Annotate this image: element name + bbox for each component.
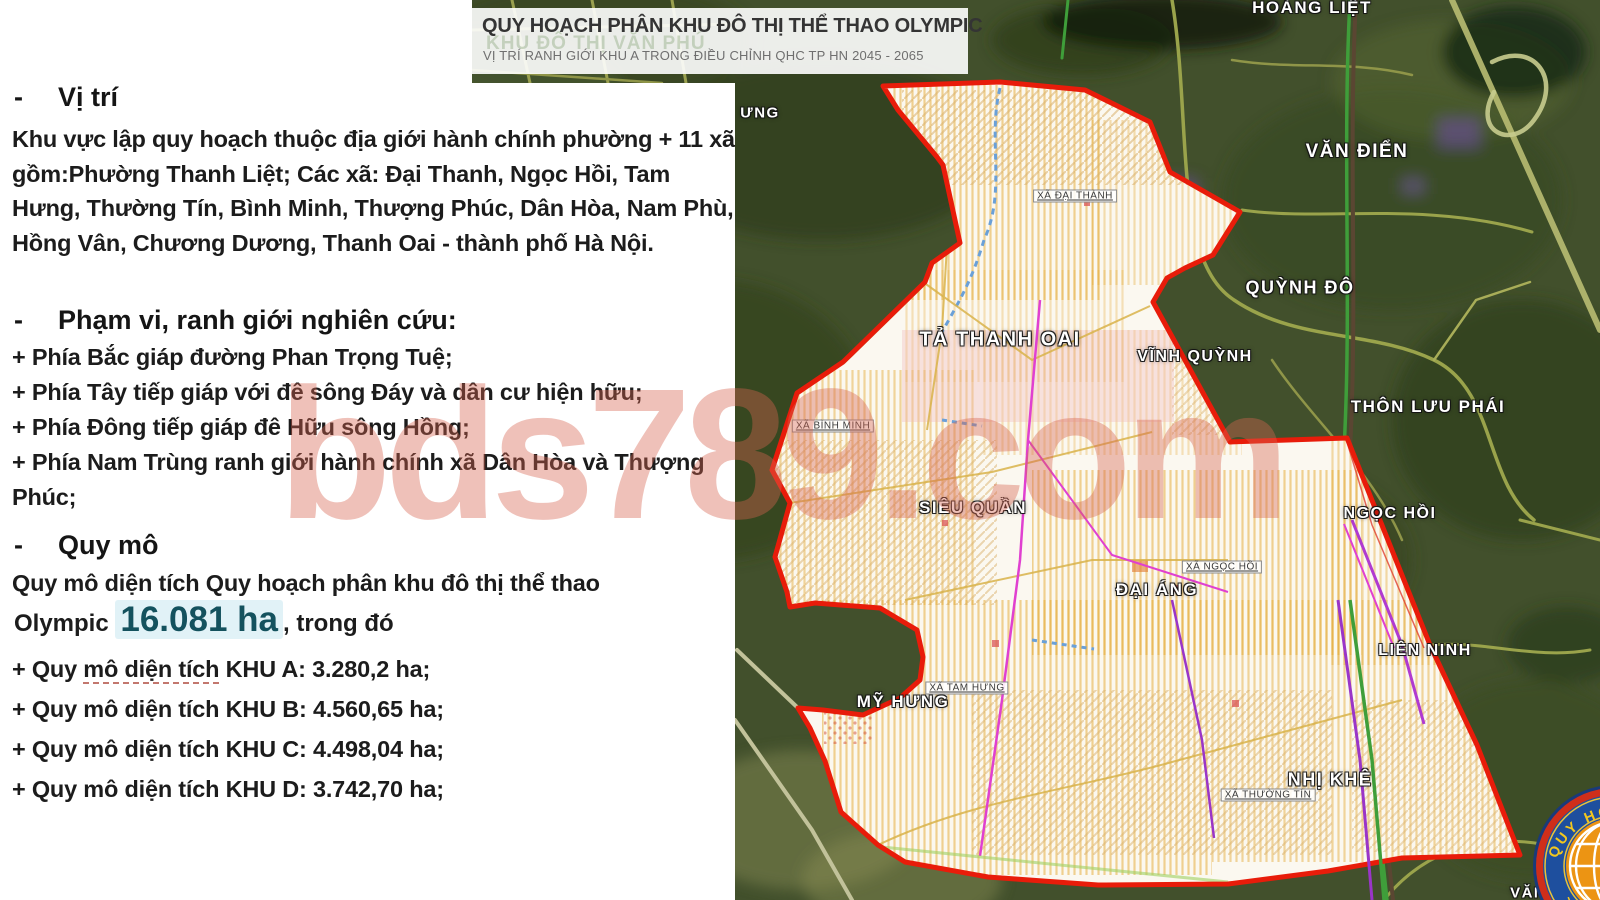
pham-vi-item: + Phía Đông tiếp giáp đê Hữu sông Hồng; (12, 410, 736, 445)
screenshot-root: HOÀNG LIỆT VĂN ĐIỂN QUỲNH ĐÔ VĨNH QUỲNH … (0, 0, 1600, 900)
bullet-dash: - (14, 82, 58, 113)
khu-b-value: 4.560,65 ha; (313, 696, 444, 722)
map-place-hoang-liet: HOÀNG LIỆT (1252, 0, 1372, 18)
map-place-partial-ung: ƯNG (740, 105, 779, 122)
khu-a-area: + Quy mô diện tích KHU A: 3.280,2 ha; (12, 652, 736, 687)
pham-vi-item: + Phía Tây tiếp giáp với đê sông Đáy và … (12, 375, 736, 410)
map-commune-xa-dai-thanh: XÃ ĐẠI THÀNH (1033, 190, 1117, 203)
map-commune-xa-thuong-tin: XÃ THƯỜNG TÍN (1221, 789, 1316, 802)
bullet-dash: - (14, 305, 58, 336)
khu-b-area: + Quy mô diện tích KHU B: 4.560,65 ha; (12, 692, 736, 727)
quy-mo-intro: Quy mô diện tích Quy hoạch phân khu đô t… (12, 566, 736, 601)
olympic-prefix: Olympic (14, 610, 115, 637)
map-place-vinh-quynh: VĨNH QUỲNH (1137, 348, 1252, 366)
section-heading-pham-vi: -Phạm vi, ranh giới nghiên cứu: (14, 305, 457, 336)
pham-vi-item: + Phía Nam Trùng ranh giới hành chính xã… (12, 445, 736, 514)
section-heading-vi-tri: -Vị trí (14, 82, 118, 113)
olympic-suffix: , trong đó (283, 610, 394, 637)
page-title: QUY HOẠCH PHÂN KHU ĐÔ THỊ THỂ THAO OLYMP… (482, 15, 983, 38)
khu-d-area: + Quy mô diện tích KHU D: 3.742,70 ha; (12, 772, 736, 807)
map-place-ta-thanh-oai: TẢ THANH OAI (919, 329, 1080, 352)
title-box: KHU ĐÔ THỊ VĂN PHÚ QUY HOẠCH PHÂN KHU ĐÔ… (470, 8, 968, 74)
map-place-sieu-quan: SIÊU QUẦN (919, 498, 1027, 518)
bullet-dash: - (14, 530, 58, 561)
pham-vi-item: + Phía Bắc giáp đường Phan Trọng Tuệ; (12, 340, 736, 375)
vi-tri-body: Khu vực lập quy hoạch thuộc địa giới hàn… (12, 122, 736, 260)
map-place-dai-ang: ĐẠI ÁNG (1116, 580, 1198, 600)
map-place-thon-luu-phai: THÔN LƯU PHÁI (1351, 397, 1506, 417)
khu-c-value: 4.498,04 ha; (313, 736, 444, 762)
map-place-quynh-do: QUỲNH ĐÔ (1245, 278, 1354, 299)
total-area-value: 16.081 ha (115, 600, 283, 639)
map-commune-xa-tam-hung: XÃ TAM HƯNG (925, 682, 1008, 695)
khu-d-value: 3.742,70 ha; (313, 776, 444, 802)
map-place-ngoc-hoi: NGỌC HỒI (1344, 505, 1437, 523)
section-heading-quy-mo: -Quy mô (14, 530, 159, 561)
olympic-total-line: Olympic 16.081 ha, trong đó (14, 600, 394, 640)
khu-c-area: + Quy mô diện tích KHU C: 4.498,04 ha; (12, 732, 736, 767)
page-subtitle: VỊ TRÍ RANH GIỚI KHU A TRONG ĐIỀU CHỈNH … (483, 48, 924, 63)
map-commune-xa-ngoc-hoi: XÃ NGỌC HỒI (1182, 561, 1262, 574)
map-place-nhi-khe: NHỊ KHÊ (1288, 770, 1373, 791)
map-place-lien-ninh: LIÊN NINH (1378, 642, 1472, 660)
map-place-van-dien: VĂN ĐIỂN (1306, 141, 1409, 163)
map-place-my-hung: MỸ HƯNG (857, 692, 950, 712)
planning-agency-logo: QUY HOẠCH THÔNG TIN (1528, 780, 1600, 900)
khu-a-value: 3.280,2 ha; (312, 656, 430, 682)
map-commune-xa-binh-minh: XÃ BÌNH MINH (792, 420, 874, 433)
